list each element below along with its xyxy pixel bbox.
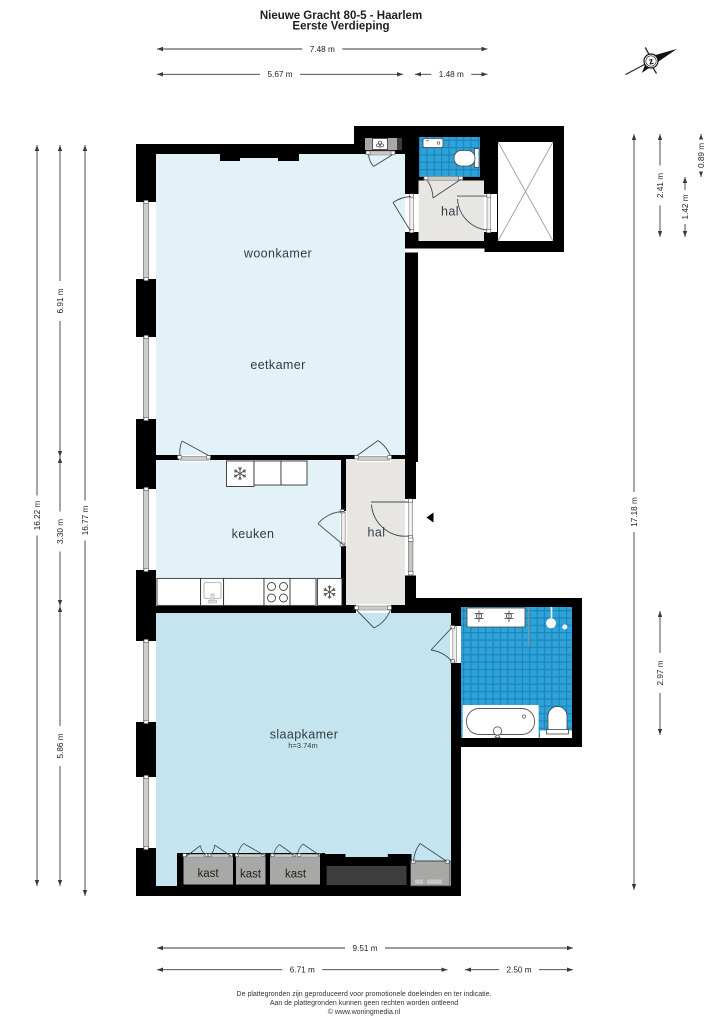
svg-text:0.89 m: 0.89 m <box>697 143 706 168</box>
svg-text:16.22 m: 16.22 m <box>33 501 42 531</box>
svg-text:hal: hal <box>368 526 386 540</box>
svg-text:1.48 m: 1.48 m <box>439 70 464 79</box>
svg-text:16.77 m: 16.77 m <box>81 506 90 536</box>
svg-text:7.48 m: 7.48 m <box>310 45 335 54</box>
svg-text:1.42 m: 1.42 m <box>681 194 690 219</box>
svg-text:5.67 m: 5.67 m <box>267 70 292 79</box>
svg-text:6.91 m: 6.91 m <box>56 288 65 313</box>
svg-text:2.41 m: 2.41 m <box>656 173 665 198</box>
svg-text:kast: kast <box>197 868 219 880</box>
svg-text:keuken: keuken <box>232 527 275 541</box>
svg-text:2.50 m: 2.50 m <box>506 966 531 975</box>
svg-text:© www.woningmedia.nl: © www.woningmedia.nl <box>328 1008 401 1016</box>
svg-text:6.71 m: 6.71 m <box>290 966 315 975</box>
svg-text:De plattegronden zijn geproduc: De plattegronden zijn geproduceerd voor … <box>237 991 492 998</box>
svg-text:9.51 m: 9.51 m <box>352 944 377 953</box>
svg-text:hal: hal <box>441 205 459 219</box>
svg-text:3.30 m: 3.30 m <box>56 519 65 544</box>
svg-text:kast: kast <box>240 869 262 881</box>
svg-text:Eerste Verdieping: Eerste Verdieping <box>292 21 389 33</box>
svg-text:17.18 m: 17.18 m <box>630 497 639 527</box>
svg-text:eetkamer: eetkamer <box>250 358 305 372</box>
svg-text:h=3.74m: h=3.74m <box>288 741 317 750</box>
svg-text:Aan de plattegronden kunnen ge: Aan de plattegronden kunnen geen rechten… <box>270 1000 458 1007</box>
svg-text:woonkamer: woonkamer <box>243 247 312 261</box>
svg-text:kast: kast <box>285 869 307 881</box>
svg-text:2.97 m: 2.97 m <box>656 660 665 685</box>
svg-text:slaapkamer: slaapkamer <box>270 728 339 742</box>
svg-text:5.86 m: 5.86 m <box>56 733 65 758</box>
